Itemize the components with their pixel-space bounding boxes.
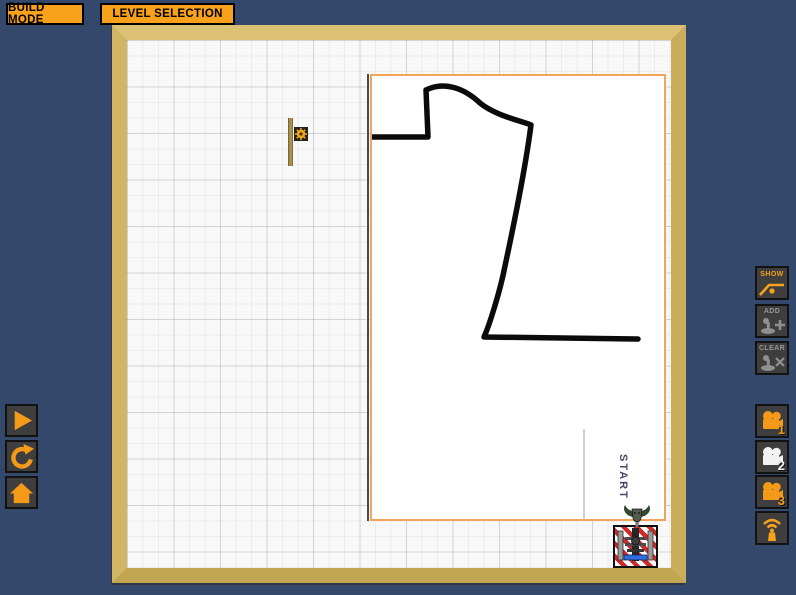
home-button[interactable] <box>5 476 38 509</box>
pin-clear-icon <box>759 353 786 372</box>
add-pin-button[interactable]: ADD <box>755 304 789 338</box>
clear-pins-button[interactable]: CLEAR <box>755 341 789 375</box>
transmitter-icon <box>760 515 784 542</box>
camera-1-number: 1 <box>778 423 785 437</box>
build-mode-button[interactable]: BUILD MODE <box>6 3 84 25</box>
show-path-icon <box>758 279 786 297</box>
camera-3-button[interactable]: 3 <box>755 475 789 509</box>
level-selection-button[interactable]: LEVEL SELECTION <box>100 3 235 25</box>
creature-icon <box>620 503 654 527</box>
transmitter-button[interactable] <box>755 511 789 545</box>
play-button[interactable] <box>5 404 38 437</box>
camera-2-button[interactable]: 2 <box>755 440 789 474</box>
add-pin-label: ADD <box>764 307 780 316</box>
camera-1-button[interactable]: 1 <box>755 404 789 438</box>
pivot-pin[interactable] <box>294 127 308 141</box>
goal-machine-icon <box>615 527 656 566</box>
stick-object[interactable] <box>288 118 293 166</box>
goal-zone <box>613 525 658 568</box>
start-label: START <box>617 454 629 500</box>
gear-pin-icon <box>294 127 308 141</box>
play-icon <box>7 406 36 435</box>
camera-3-number: 3 <box>778 494 785 508</box>
reset-button[interactable] <box>5 440 38 473</box>
pin-add-icon <box>759 316 786 335</box>
game-screen: BUILD MODE LEVEL SELECTION START <box>0 0 796 595</box>
camera-2-number: 2 <box>778 459 785 473</box>
home-icon <box>7 478 36 507</box>
start-line <box>583 429 585 519</box>
clear-pins-label: CLEAR <box>759 344 785 353</box>
sheet-shadow-line <box>367 74 369 521</box>
reset-icon <box>7 442 36 471</box>
level-sheet[interactable]: START <box>370 74 666 521</box>
drawn-line <box>372 76 664 519</box>
show-path-button[interactable]: SHOW <box>755 266 789 300</box>
show-path-label: SHOW <box>760 270 783 279</box>
